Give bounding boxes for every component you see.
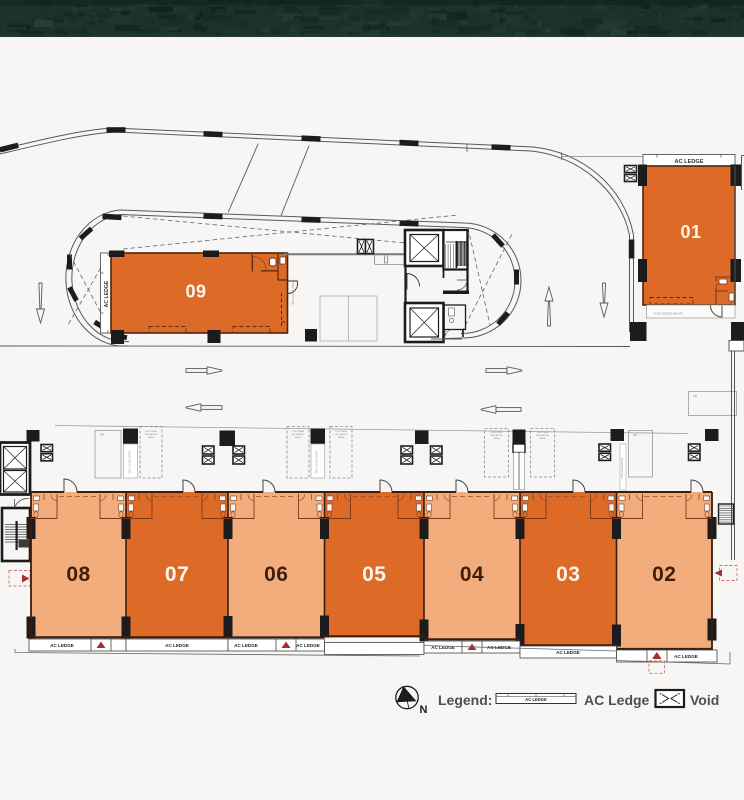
svg-text:UNLOADING: UNLOADING [490, 434, 503, 437]
svg-text:AREA: AREA [148, 436, 154, 439]
svg-text:UNLOADING: UNLOADING [536, 434, 549, 437]
svg-text:AC LEDGE: AC LEDGE [234, 643, 258, 648]
svg-text:02: 02 [652, 563, 676, 586]
svg-text:AC LEDGE: AC LEDGE [165, 643, 189, 648]
svg-text:VAN LEDGE ABOVE: VAN LEDGE ABOVE [316, 450, 319, 474]
svg-text:01: 01 [680, 222, 701, 242]
svg-text:UNLOADING: UNLOADING [334, 433, 347, 436]
svg-text:CP: CP [693, 394, 697, 398]
svg-text:AREA: AREA [295, 436, 301, 439]
svg-text:AC Ledge: AC Ledge [584, 692, 650, 708]
svg-text:VAN LEDGE ABOVE: VAN LEDGE ABOVE [621, 457, 624, 479]
svg-text:CUSTOMER: CUSTOMER [335, 431, 348, 433]
svg-text:03: 03 [556, 563, 580, 586]
svg-text:AC LEDGE: AC LEDGE [50, 643, 74, 648]
svg-text:AC LEDGE: AC LEDGE [556, 650, 580, 655]
svg-text:Void: Void [690, 692, 719, 708]
svg-text:CUSTOMER: CUSTOMER [490, 432, 503, 434]
svg-text:VAN LEDGE ABOVE: VAN LEDGE ABOVE [129, 450, 132, 474]
svg-text:AC LEDGE: AC LEDGE [525, 697, 547, 702]
svg-text:AC LEDGE: AC LEDGE [104, 280, 110, 307]
svg-text:AREA: AREA [540, 437, 546, 440]
svg-text:06: 06 [264, 563, 288, 586]
svg-text:07: 07 [165, 563, 189, 586]
svg-text:CUSTOMER: CUSTOMER [145, 431, 158, 433]
svg-text:AREA: AREA [338, 436, 344, 439]
svg-text:AREA: AREA [494, 437, 500, 440]
svg-text:UNLOADING: UNLOADING [144, 433, 157, 436]
svg-text:N: N [420, 704, 428, 716]
svg-text:Legend:: Legend: [438, 692, 492, 708]
svg-text:UNLOADING: UNLOADING [291, 433, 304, 436]
svg-text:CUSTOMER: CUSTOMER [536, 432, 549, 434]
svg-text:AC LEDGE: AC LEDGE [675, 159, 704, 165]
svg-text:CP: CP [100, 433, 104, 437]
svg-text:09: 09 [185, 282, 206, 302]
svg-text:CP: CP [633, 433, 637, 437]
svg-text:VOID LEDGE ABOVE: VOID LEDGE ABOVE [653, 312, 682, 316]
svg-text:05: 05 [362, 563, 386, 586]
svg-text:AC LEDGE: AC LEDGE [296, 643, 320, 648]
svg-text:AC LEDGE: AC LEDGE [674, 654, 698, 659]
svg-text:CUSTOMER: CUSTOMER [292, 431, 305, 433]
svg-text:04: 04 [460, 563, 484, 586]
svg-text:VAN LEDGE ABOVE: VAN LEDGE ABOVE [291, 279, 295, 305]
svg-text:08: 08 [66, 563, 90, 586]
